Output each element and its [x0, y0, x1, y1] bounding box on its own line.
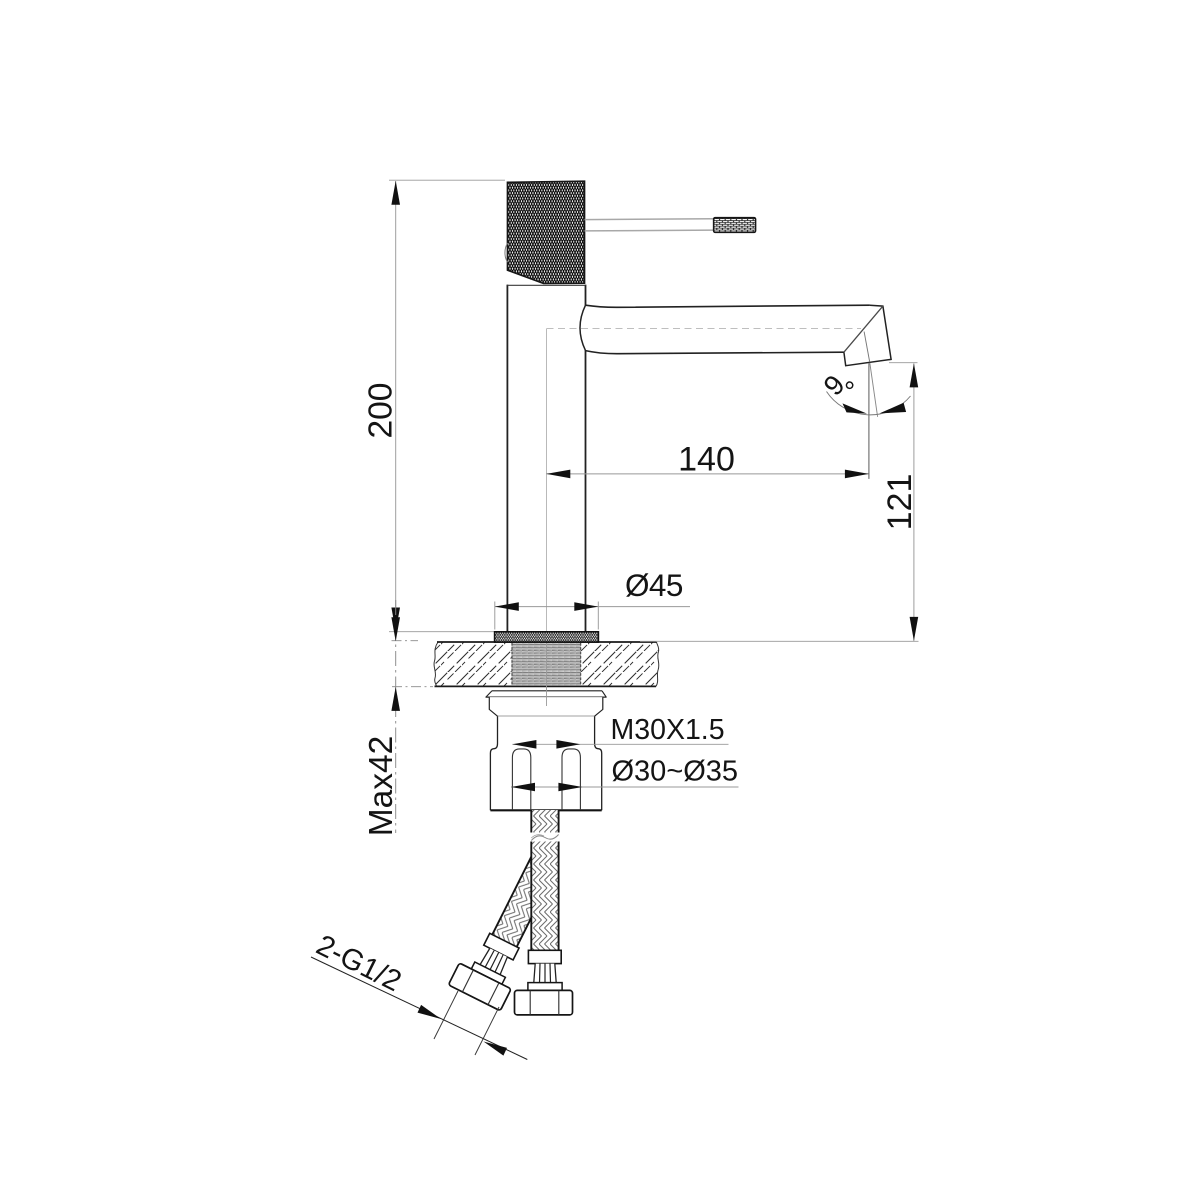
- svg-text:Ø45: Ø45: [625, 567, 683, 603]
- svg-text:140: 140: [678, 440, 735, 478]
- svg-text:Ø30~Ø35: Ø30~Ø35: [612, 756, 739, 788]
- svg-text:Max42: Max42: [363, 736, 400, 837]
- svg-text:M30X1.5: M30X1.5: [611, 714, 725, 746]
- svg-text:200: 200: [363, 383, 400, 439]
- svg-text:121: 121: [881, 474, 919, 531]
